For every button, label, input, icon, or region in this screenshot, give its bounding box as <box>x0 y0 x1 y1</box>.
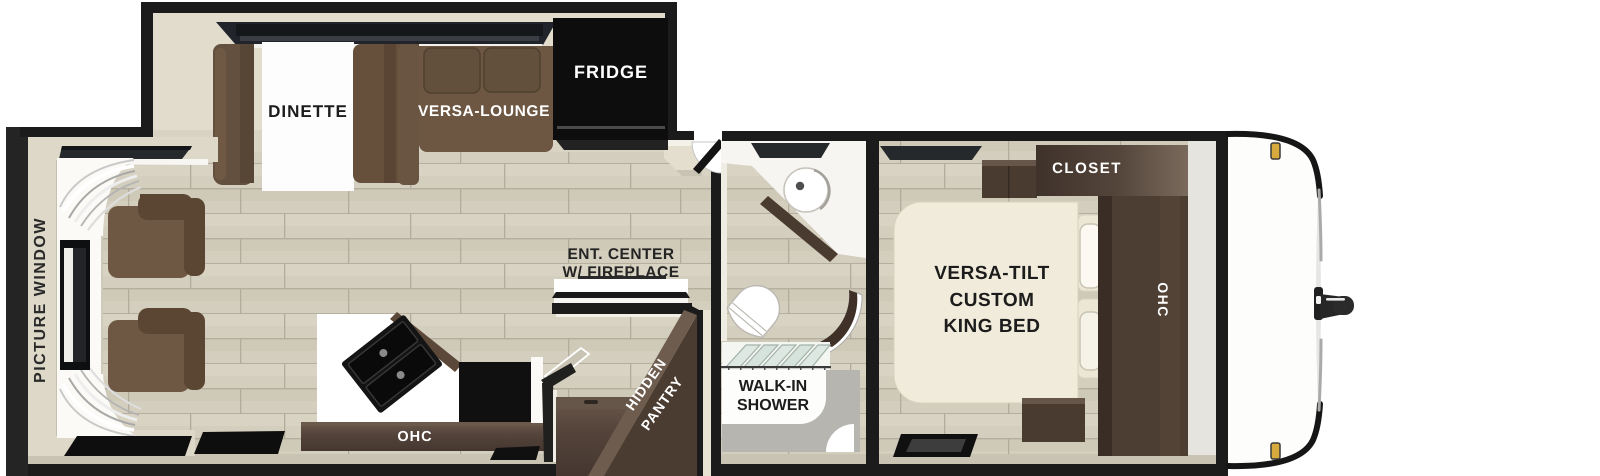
svg-text:SHOWER: SHOWER <box>737 397 809 414</box>
svg-text:KING BED: KING BED <box>944 316 1041 337</box>
svg-text:CUSTOM: CUSTOM <box>950 290 1035 311</box>
svg-text:W/ FIREPLACE: W/ FIREPLACE <box>562 264 679 281</box>
svg-text:VERSA-TILT: VERSA-TILT <box>934 263 1049 284</box>
svg-text:FRIDGE: FRIDGE <box>574 62 648 82</box>
svg-text:OHC: OHC <box>1155 282 1171 318</box>
svg-text:DINETTE: DINETTE <box>268 102 348 121</box>
svg-text:OHC: OHC <box>397 429 432 445</box>
svg-text:CLOSET: CLOSET <box>1052 160 1122 177</box>
svg-text:WALK-IN: WALK-IN <box>739 378 807 395</box>
svg-text:VERSA-LOUNGE: VERSA-LOUNGE <box>418 103 550 120</box>
svg-text:ENT. CENTER: ENT. CENTER <box>567 246 674 263</box>
svg-text:PICTURE WINDOW: PICTURE WINDOW <box>32 217 49 383</box>
